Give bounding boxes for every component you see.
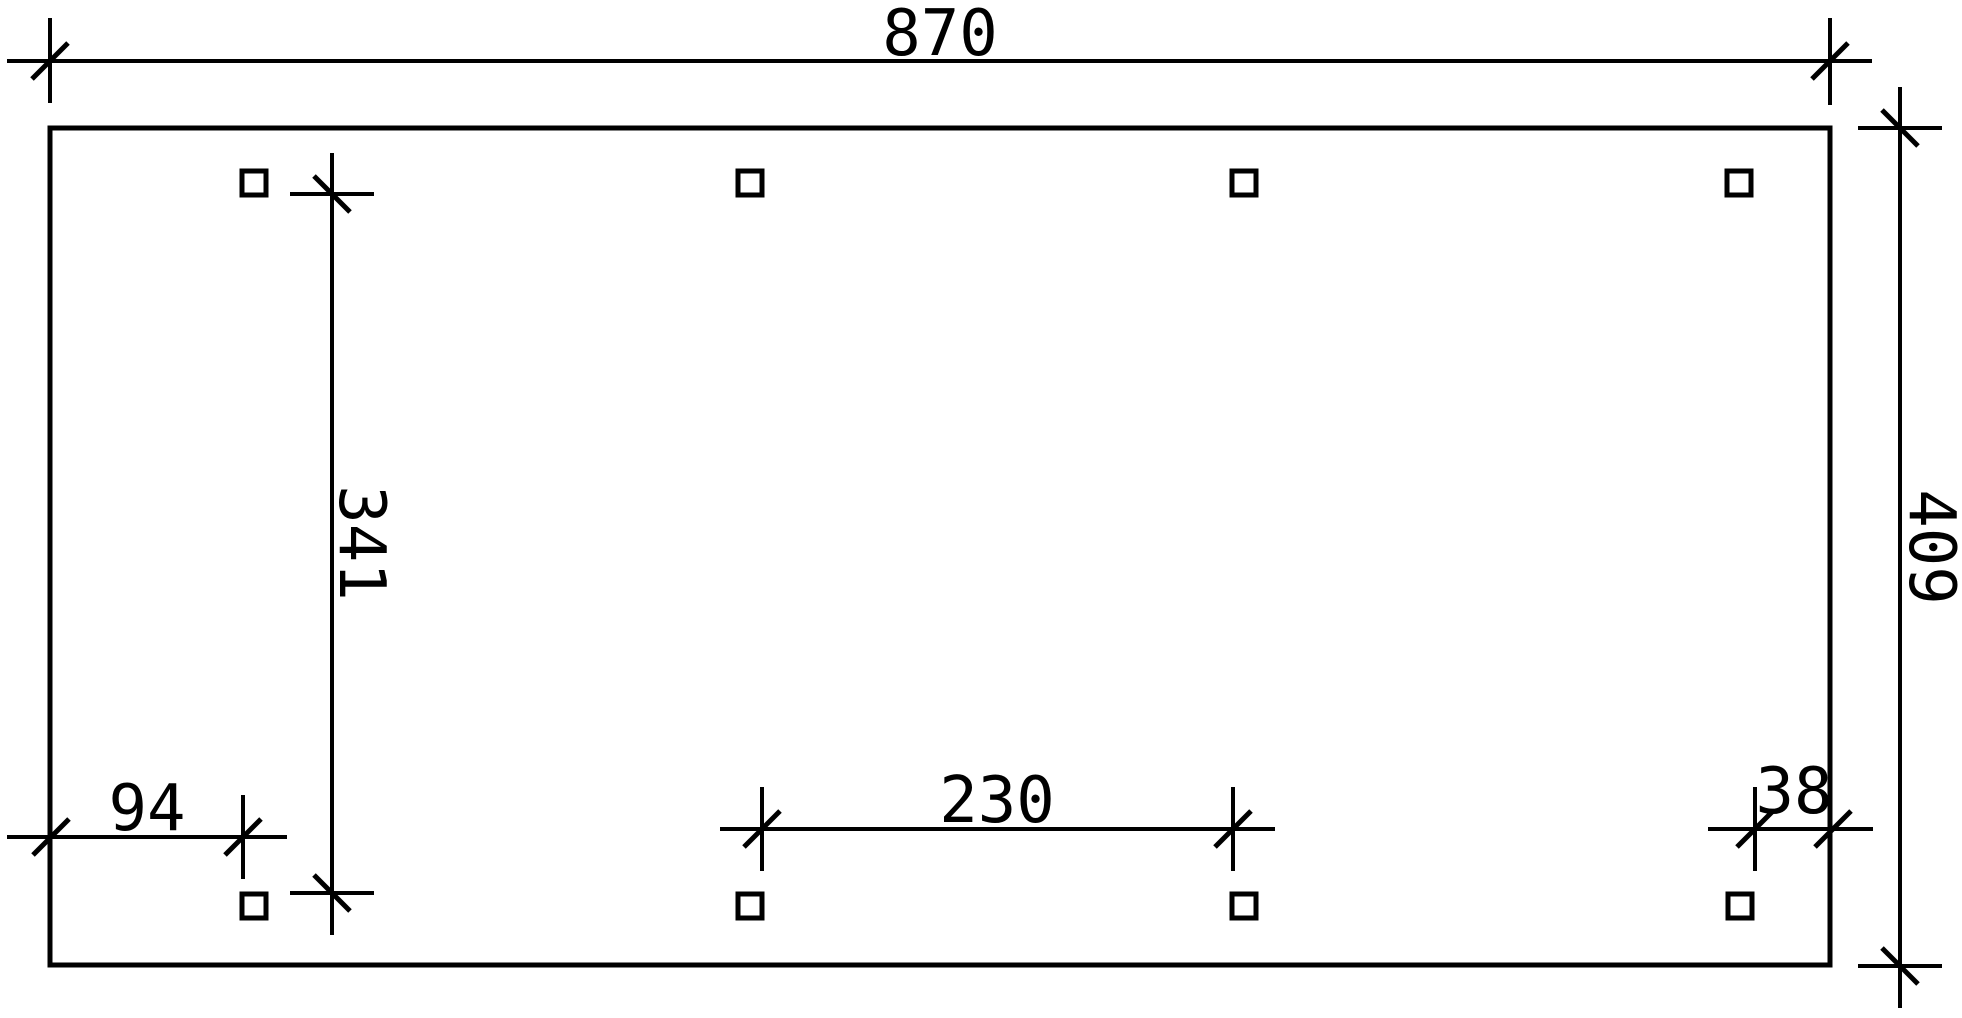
post-row-top: [242, 171, 1751, 195]
dimension-label-left-post-offset: 94: [108, 772, 185, 846]
dimension-label-right-post-offset: 38: [1755, 755, 1832, 829]
dimension-overall-width: 870: [7, 0, 1872, 105]
dimension-post-row-span: 341: [290, 153, 398, 935]
post-row-bottom: [242, 894, 1752, 918]
building-outline: [50, 128, 1830, 965]
dimension-label-overall-width: 870: [882, 0, 998, 71]
post-top-3: [1232, 171, 1256, 195]
plan-drawing: 870 409 341 94: [0, 0, 1962, 1018]
post-bottom-1: [242, 894, 266, 918]
drawing-sheet: 870 409 341 94: [0, 0, 1962, 1018]
post-bottom-2: [738, 894, 762, 918]
post-top-4: [1727, 171, 1751, 195]
post-bottom-4: [1728, 894, 1752, 918]
dimension-overall-depth: 409: [1858, 87, 1962, 1008]
dimension-label-post-bay-spacing: 230: [939, 764, 1055, 838]
post-bottom-3: [1232, 894, 1256, 918]
dimension-label-overall-depth: 409: [1894, 489, 1962, 605]
post-top-1: [242, 171, 266, 195]
post-top-2: [738, 171, 762, 195]
dimension-label-post-row-span: 341: [324, 485, 398, 601]
dimension-post-bay-spacing: 230: [720, 764, 1275, 871]
dimension-right-post-offset: 38: [1708, 755, 1873, 871]
